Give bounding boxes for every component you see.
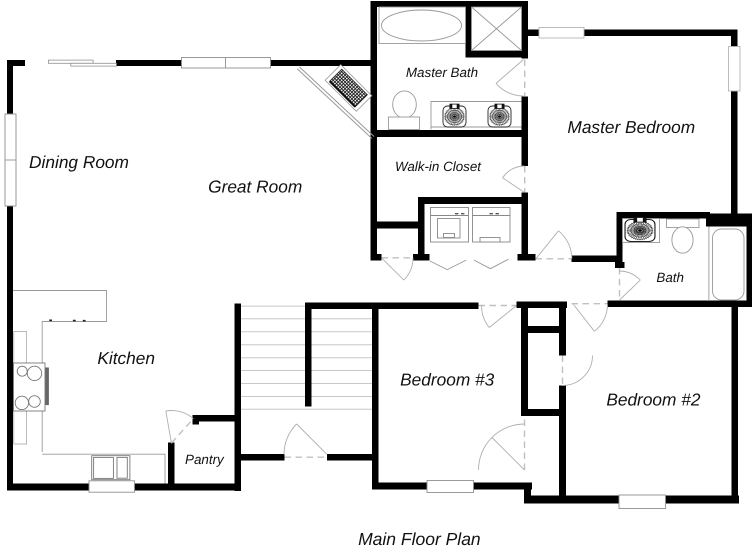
svg-text:Kitchen: Kitchen: [97, 348, 155, 368]
svg-text:Bedroom #2: Bedroom #2: [606, 390, 701, 410]
svg-text:Master Bath: Master Bath: [406, 65, 478, 80]
svg-text:Bedroom #3: Bedroom #3: [400, 370, 495, 390]
svg-text:Bath: Bath: [656, 270, 684, 285]
svg-text:Master Bedroom: Master Bedroom: [567, 117, 695, 137]
svg-text:Pantry: Pantry: [185, 452, 225, 467]
svg-text:Great Room: Great Room: [208, 177, 302, 197]
svg-text:Walk-in Closet: Walk-in Closet: [395, 159, 482, 174]
svg-text:Main Floor Plan: Main Floor Plan: [358, 529, 481, 549]
svg-text:Dining Room: Dining Room: [29, 152, 129, 172]
